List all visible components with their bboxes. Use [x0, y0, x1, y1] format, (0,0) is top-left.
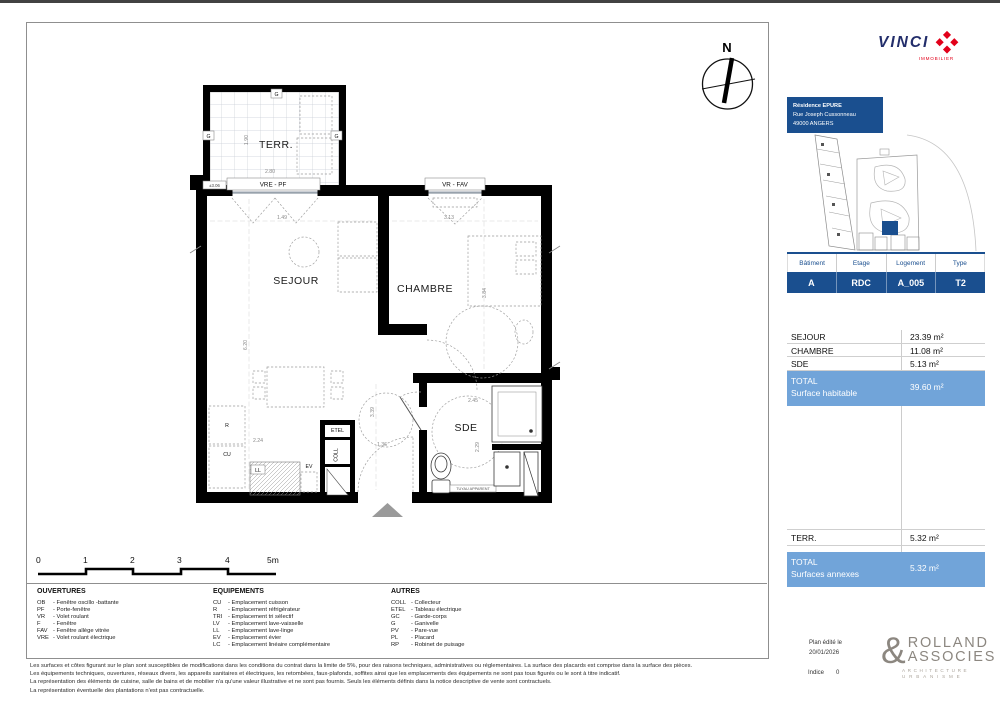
- scale-tick-label: 1: [83, 555, 88, 565]
- vinci-symbol-icon: [933, 30, 961, 56]
- legend-title: AUTRES: [391, 588, 541, 595]
- surfaces-table: SEJOUR 23.39 m² CHAMBRE 11.08 m² SDE 5.1…: [787, 330, 985, 588]
- unit-table-values: A RDC A_005 T2: [787, 272, 985, 293]
- legend-item: F- Fenêtre: [37, 621, 207, 628]
- project-city: 49000 ANGERS: [793, 120, 883, 129]
- scale-bar-line: [38, 569, 276, 574]
- window-chambre: VR - FAV: [425, 178, 485, 196]
- legend-item: GC- Garde-corps: [391, 614, 541, 621]
- legend-item: LC- Emplacement linéaire complémentaire: [213, 642, 388, 649]
- entrance: [358, 393, 413, 517]
- disclaimer-line: Les surfaces et côtes figurant sur le pl…: [30, 662, 790, 670]
- scale-tick-label: 4: [225, 555, 230, 565]
- legend-title: OUVERTURES: [37, 588, 207, 595]
- unit-table-header: Bâtiment Etage Logement Type: [787, 254, 985, 272]
- vinci-wordmark: VINCI: [878, 34, 929, 52]
- tuyau-apparent-label: TUYAU APPARENT: [456, 487, 490, 491]
- scale-tick-label: 3: [177, 555, 182, 565]
- svg-text:3.84: 3.84: [482, 288, 488, 298]
- scale-bar: 0 1 2 3 4 5m: [34, 550, 284, 578]
- disclaimer-line: La représentation des éléments de cuisin…: [30, 678, 790, 686]
- room-label-sejour: SEJOUR: [273, 275, 319, 287]
- legend-item: LV- Emplacement lave-vaisselle: [213, 621, 388, 628]
- indice-label: Indice: [808, 670, 824, 676]
- indice-value: 0: [836, 670, 839, 676]
- architect-ampersand: &: [881, 636, 906, 666]
- ganivelle-mark: G: [274, 92, 278, 98]
- svg-text:2.45: 2.45: [468, 398, 478, 404]
- sink-mark: EV: [306, 464, 313, 470]
- annex-surface-row: TERR. 5.32 m²: [787, 529, 985, 546]
- legal-disclaimers: Les surfaces et côtes figurant sur le pl…: [30, 662, 790, 695]
- disclaimer-line: Les équipements techniques, ouvertures, …: [30, 670, 790, 678]
- window-label-vre-pf: VRE - PF: [260, 182, 287, 189]
- room-label-terrasse: TERR.: [259, 139, 293, 151]
- project-residence: Résidence EPURE: [793, 102, 883, 111]
- etel-mark: ETEL: [331, 428, 344, 434]
- page-top-edge: [0, 0, 1000, 3]
- legend-item: TRI- Emplacement tri sélectif: [213, 614, 388, 621]
- window-label-vr-fav: VR - FAV: [442, 182, 469, 189]
- legend-autres: AUTRES COLL- Collecteur ETEL- Tableau él…: [391, 588, 541, 649]
- project-street: Rue Joseph Cussonneau: [793, 111, 883, 120]
- legend-item: PV- Pare-vue: [391, 628, 541, 635]
- north-compass: N: [698, 38, 760, 110]
- unit-header-type: Type: [936, 254, 984, 272]
- legend-ouvertures: OUVERTURES OB- Fenêtre oscillo -battante…: [37, 588, 207, 642]
- legend-item: VR- Volet roulant: [37, 614, 207, 621]
- legend-item: COLL- Collecteur: [391, 600, 541, 607]
- legend-separator: [27, 583, 767, 584]
- cooking-mark: CU: [223, 452, 231, 458]
- svg-text:2.29: 2.29: [475, 442, 481, 452]
- edition-date: 20/01/2026: [809, 650, 839, 656]
- project-address-box: Résidence EPURE Rue Joseph Cussonneau 49…: [787, 97, 883, 133]
- architect-field-1: ARCHITECTURE: [902, 668, 996, 673]
- north-label: N: [722, 40, 731, 55]
- unit-header-logement: Logement: [887, 254, 936, 272]
- sejour-furniture: [253, 222, 377, 407]
- unit-value-logement: A_005: [887, 272, 937, 293]
- legend-item: OB- Fenêtre oscillo -battante: [37, 600, 207, 607]
- legend-item: PL- Placard: [391, 635, 541, 642]
- room-label-sde: SDE: [454, 422, 477, 434]
- legend-item: EV- Emplacement évier: [213, 635, 388, 642]
- compass-needle-icon: [724, 58, 732, 103]
- unit-header-etage: Etage: [837, 254, 886, 272]
- disclaimer-line: La représentation éventuelle des plantat…: [30, 687, 790, 695]
- vinci-subtitle: IMMOBILIER: [878, 56, 954, 61]
- architect-name-1: ROLLAND: [908, 636, 997, 650]
- unit-table: Bâtiment Etage Logement Type A RDC A_005…: [787, 252, 985, 293]
- svg-text:2.24: 2.24: [253, 438, 263, 444]
- legend-title: EQUIPEMENTS: [213, 588, 388, 595]
- svg-text:6.20: 6.20: [243, 340, 249, 350]
- surfaces-spacer: [787, 406, 985, 529]
- architect-field-2: URBANISME: [902, 674, 996, 679]
- scale-tick-label: 5m: [267, 555, 279, 565]
- legend-item: LL- Emplacement lave-linge: [213, 628, 388, 635]
- legend-item: FAV- Fenêtre allège vitrée: [37, 628, 207, 635]
- entrance-arrow-icon: [372, 503, 403, 517]
- kitchen: R CU LL EV: [209, 406, 317, 495]
- scale-tick-label: 0: [36, 555, 41, 565]
- dimension-labels: 1.49 3.13 6.20 3.84 3.39 1.36 2.24 2.45 …: [243, 215, 488, 452]
- legend-item: ETEL- Tableau électrique: [391, 607, 541, 614]
- legend-item: G- Ganivelle: [391, 621, 541, 628]
- dim-terrace-width: 2.80: [265, 169, 275, 175]
- terrace: G G G TERR. 1.90 2.80: [190, 85, 346, 190]
- surface-row: SEJOUR 23.39 m²: [787, 330, 985, 344]
- surface-row: CHAMBRE 11.08 m²: [787, 344, 985, 358]
- unit-header-batiment: Bâtiment: [788, 254, 837, 272]
- svg-text:1.36: 1.36: [377, 442, 387, 448]
- unit-value-etage: RDC: [837, 272, 887, 293]
- legend-equipements: EQUIPEMENTS CU- Emplacement cuisson R- E…: [213, 588, 388, 649]
- legend-item: PF- Porte-fenêtre: [37, 607, 207, 614]
- svg-text:1.49: 1.49: [277, 215, 287, 221]
- legend-item: VRE- Volet roulant électrique: [37, 635, 207, 642]
- surface-row: SDE 5.13 m²: [787, 357, 985, 371]
- washer-mark: LL: [255, 468, 261, 474]
- legend-item: CU- Emplacement cuisson: [213, 600, 388, 607]
- unit-value-batiment: A: [787, 272, 837, 293]
- ganivelle-mark: G: [334, 134, 338, 140]
- dim-terrace-depth: 1.90: [244, 135, 250, 145]
- level-mark: ±3.06: [209, 183, 220, 188]
- vinci-logo: VINCI IMMOBILIER: [878, 30, 961, 61]
- legend-item: RP- Robinet de puisage: [391, 642, 541, 649]
- architect-logo: & ROLLAND ASSOCIES ARCHITECTURE URBANISM…: [881, 636, 996, 679]
- ganivelle-mark: G: [206, 134, 210, 140]
- svg-text:3.13: 3.13: [444, 215, 454, 221]
- scale-tick-label: 2: [130, 555, 135, 565]
- unit-highlight: [882, 221, 898, 235]
- fridge-mark: R: [225, 423, 229, 429]
- total-annexes-row: TOTAL Surfaces annexes 5.32 m²: [787, 552, 985, 587]
- architect-name-2: ASSOCIES: [908, 650, 997, 664]
- legend-item: R- Emplacement réfrigérateur: [213, 607, 388, 614]
- coll-mark: COLL: [334, 448, 340, 462]
- unit-value-type: T2: [936, 272, 985, 293]
- site-plan-map: [787, 133, 985, 252]
- total-habitable-row: TOTAL Surface habitable 39.60 m²: [787, 371, 985, 406]
- edition-date-label: Plan édité le: [809, 640, 842, 646]
- svg-text:3.39: 3.39: [370, 407, 376, 417]
- room-label-chambre: CHAMBRE: [397, 283, 453, 295]
- floor-plan: G G G TERR. 1.90 2.80 VRE: [180, 75, 576, 527]
